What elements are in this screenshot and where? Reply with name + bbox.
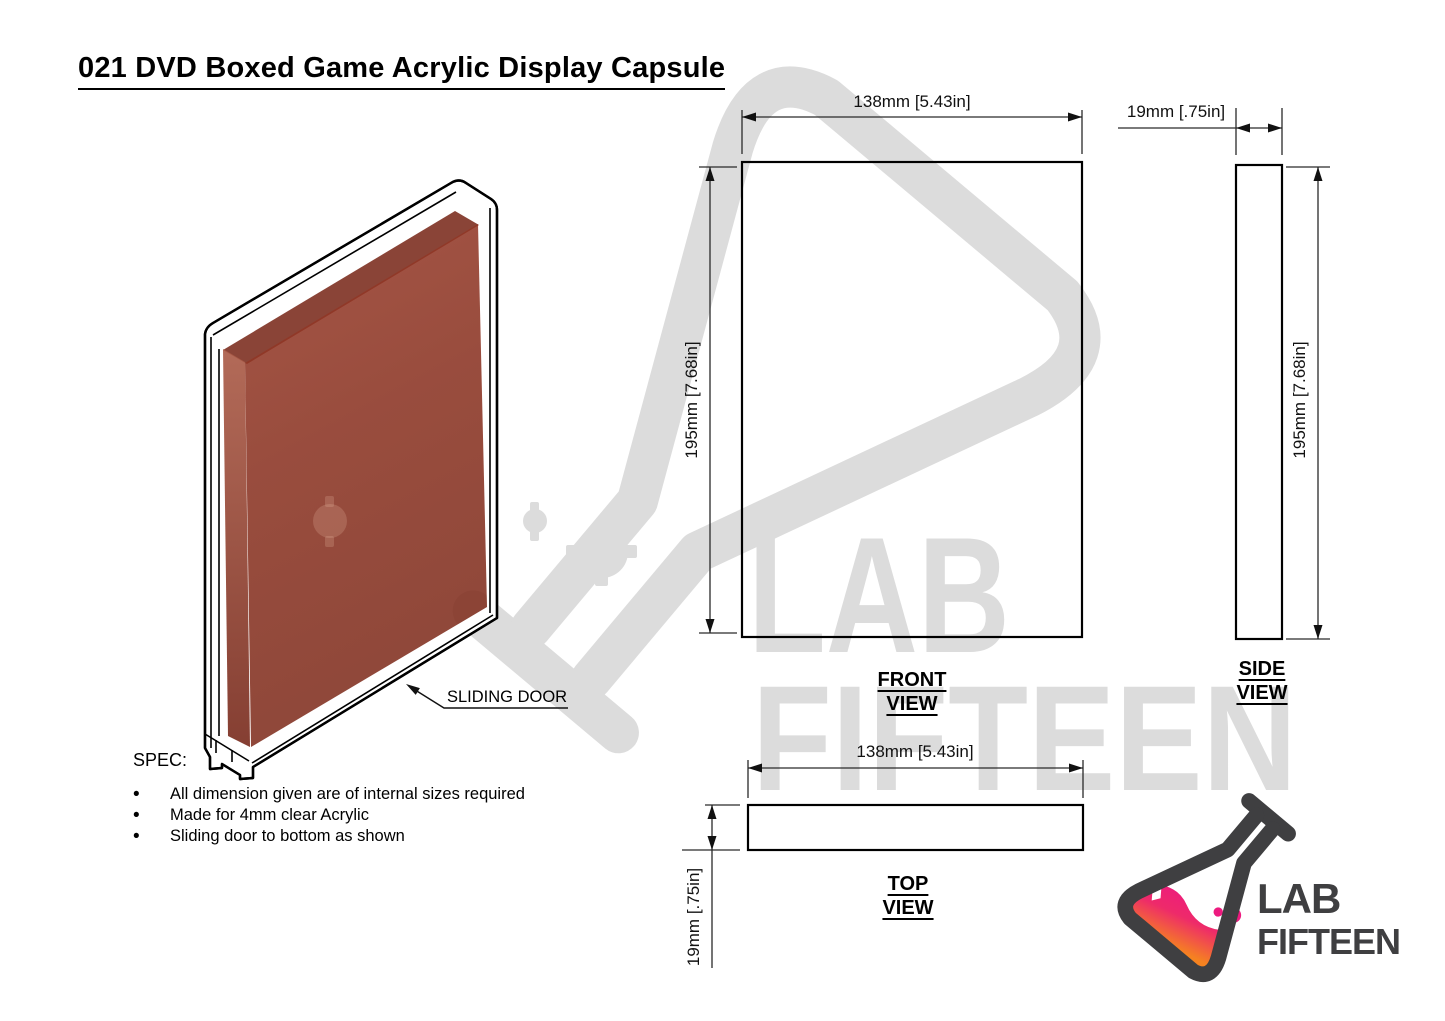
spec-heading: SPEC:: [133, 750, 187, 771]
side-view-label: SIDE VIEW: [1236, 657, 1287, 705]
front-view-label-line1: FRONT: [878, 668, 947, 692]
side-view-label-line1: SIDE: [1236, 657, 1287, 681]
spec-item-text: Sliding door to bottom as shown: [170, 826, 405, 847]
side-view-label-line2: VIEW: [1236, 681, 1287, 705]
logo-text-fifteen: FIFTEEN: [1257, 921, 1400, 963]
top-view-label: TOP VIEW: [882, 872, 933, 920]
spec-item-text: All dimension given are of internal size…: [170, 784, 525, 805]
spec-list: • All dimension given are of internal si…: [133, 784, 525, 847]
spec-item: • All dimension given are of internal si…: [133, 784, 525, 805]
page-title: 021 DVD Boxed Game Acrylic Display Capsu…: [78, 52, 725, 90]
bullet-icon: •: [133, 826, 170, 847]
front-height-dimension: 195mm [7.68in]: [682, 341, 702, 458]
spec-item: • Sliding door to bottom as shown: [133, 826, 525, 847]
drawing-sheet: LAB FIFTEEN: [0, 0, 1445, 1021]
sliding-door-annotation: SLIDING DOOR: [447, 688, 567, 707]
top-view-label-line1: TOP: [882, 872, 933, 896]
spec-item-text: Made for 4mm clear Acrylic: [170, 805, 369, 826]
top-view-label-line2: VIEW: [882, 896, 933, 920]
side-height-dimension: 195mm [7.68in]: [1290, 341, 1310, 458]
logo-text-lab: LAB: [1257, 875, 1340, 923]
bullet-icon: •: [133, 784, 170, 805]
front-width-dimension: 138mm [5.43in]: [853, 92, 970, 112]
front-view-label: FRONT VIEW: [878, 668, 947, 716]
top-height-dimension: 19mm [.75in]: [684, 868, 704, 966]
side-width-dimension: 19mm [.75in]: [1127, 102, 1225, 122]
dvd-box: [223, 211, 487, 747]
top-width-dimension: 138mm [5.43in]: [856, 742, 973, 762]
front-view-label-line2: VIEW: [878, 692, 947, 716]
bullet-icon: •: [133, 805, 170, 826]
spec-item: • Made for 4mm clear Acrylic: [133, 805, 525, 826]
